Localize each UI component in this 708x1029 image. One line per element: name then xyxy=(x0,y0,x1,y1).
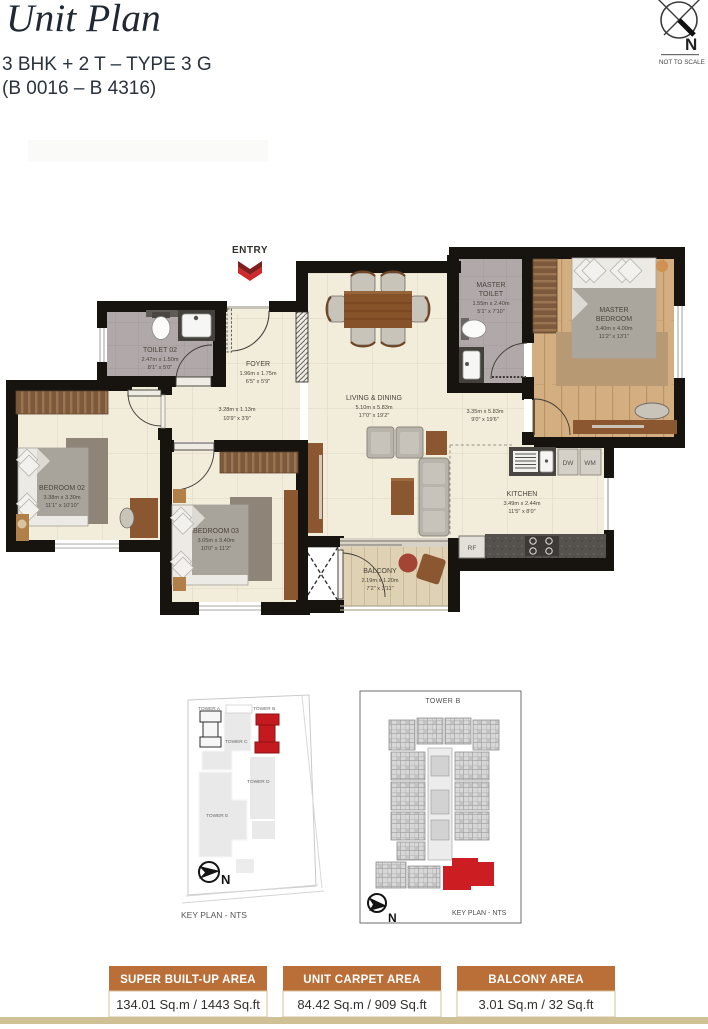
svg-text:N: N xyxy=(221,872,230,887)
svg-text:1.55m x 2.40m: 1.55m x 2.40m xyxy=(473,301,510,307)
svg-text:11'5" x 8'0": 11'5" x 8'0" xyxy=(508,509,535,515)
svg-text:10'0" x 11'2": 10'0" x 11'2" xyxy=(201,546,231,552)
svg-text:NOT TO SCALE: NOT TO SCALE xyxy=(659,59,705,66)
svg-text:ENTRY: ENTRY xyxy=(232,245,268,256)
svg-text:3.38m x 3.30m: 3.38m x 3.30m xyxy=(44,495,81,501)
svg-text:3.28m x 1.13m: 3.28m x 1.13m xyxy=(219,407,256,413)
svg-text:3.05m x 3.40m: 3.05m x 3.40m xyxy=(198,538,235,544)
svg-text:3 BHK + 2 T – TYPE 3 G: 3 BHK + 2 T – TYPE 3 G xyxy=(2,54,212,75)
svg-text:DW: DW xyxy=(563,460,575,467)
svg-text:11'1" x 10'10": 11'1" x 10'10" xyxy=(45,503,78,509)
svg-text:TOWER A: TOWER A xyxy=(198,706,221,712)
svg-text:N: N xyxy=(685,35,697,54)
svg-text:KEY PLAN - NTS: KEY PLAN - NTS xyxy=(181,910,247,920)
svg-text:N: N xyxy=(388,911,397,925)
svg-text:FOYER: FOYER xyxy=(246,361,270,368)
svg-text:MASTER: MASTER xyxy=(476,282,505,289)
svg-text:BEDROOM: BEDROOM xyxy=(596,316,632,323)
svg-text:10'9" x 3'9": 10'9" x 3'9" xyxy=(223,416,251,422)
svg-text:3.35m x 5.83m: 3.35m x 5.83m xyxy=(467,409,504,415)
svg-text:TOWER C: TOWER C xyxy=(225,739,248,745)
svg-text:SUPER BUILT-UP AREA: SUPER BUILT-UP AREA xyxy=(120,974,256,986)
svg-text:TOWER D: TOWER D xyxy=(247,779,270,785)
svg-text:LIVING & DINING: LIVING & DINING xyxy=(346,395,402,402)
svg-text:17'0" x 19'2": 17'0" x 19'2" xyxy=(359,413,390,419)
svg-text:WM: WM xyxy=(584,460,596,467)
svg-text:1.96m x 1.75m: 1.96m x 1.75m xyxy=(240,371,277,377)
svg-text:Unit Plan: Unit Plan xyxy=(6,0,161,40)
svg-text:3.40m x 4.00m: 3.40m x 4.00m xyxy=(596,326,633,332)
svg-text:5'1" x 7'10": 5'1" x 7'10" xyxy=(477,309,505,315)
svg-text:TOILET 02: TOILET 02 xyxy=(143,347,177,354)
svg-text:RF: RF xyxy=(468,545,477,552)
svg-text:8'1" x 5'0": 8'1" x 5'0" xyxy=(148,365,172,371)
svg-text:2.47m x 1.50m: 2.47m x 1.50m xyxy=(142,357,179,363)
svg-text:TOWER E: TOWER E xyxy=(206,813,228,819)
svg-text:TOWER B: TOWER B xyxy=(425,698,460,705)
svg-text:134.01 Sq.m / 1443 Sq.ft: 134.01 Sq.m / 1443 Sq.ft xyxy=(116,997,260,1012)
svg-text:KEY PLAN - NTS: KEY PLAN - NTS xyxy=(452,910,507,917)
svg-text:6'5" x 5'9": 6'5" x 5'9" xyxy=(246,379,270,385)
svg-text:BALCONY: BALCONY xyxy=(363,568,397,575)
svg-text:11'2" x 13'1": 11'2" x 13'1" xyxy=(599,334,629,340)
svg-text:3.49m x 2.44m: 3.49m x 2.44m xyxy=(504,501,541,507)
svg-text:UNIT CARPET AREA: UNIT CARPET AREA xyxy=(303,974,420,986)
svg-text:TOWER B: TOWER B xyxy=(253,706,275,712)
svg-text:BEDROOM 02: BEDROOM 02 xyxy=(39,485,85,492)
svg-text:7'2" x 3'11": 7'2" x 3'11" xyxy=(366,586,393,592)
svg-text:BEDROOM 03: BEDROOM 03 xyxy=(193,528,239,535)
svg-text:9'0" x 19'6": 9'0" x 19'6" xyxy=(471,417,499,423)
svg-text:3.01 Sq.m / 32 Sq.ft: 3.01 Sq.m / 32 Sq.ft xyxy=(479,997,594,1012)
svg-text:MASTER: MASTER xyxy=(599,307,628,314)
svg-text:KITCHEN: KITCHEN xyxy=(507,491,538,498)
svg-text:TOILET: TOILET xyxy=(479,291,504,298)
svg-text:2.19m x 1.20m: 2.19m x 1.20m xyxy=(362,578,399,584)
svg-text:84.42 Sq.m / 909 Sq.ft: 84.42 Sq.m / 909 Sq.ft xyxy=(297,997,427,1012)
svg-text:BALCONY AREA: BALCONY AREA xyxy=(488,974,584,986)
svg-text:5.10m x 5.83m: 5.10m x 5.83m xyxy=(356,405,393,411)
svg-text:(B 0016 – B 4316): (B 0016 – B 4316) xyxy=(2,78,156,99)
